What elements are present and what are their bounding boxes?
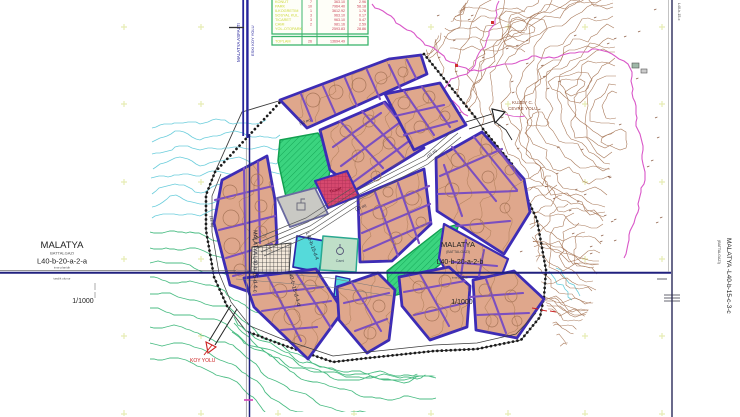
svg-text:MALATYA L40-b-15-d-4-c: MALATYA L40-b-15-d-4-c bbox=[252, 230, 258, 293]
svg-text:CAMI: CAMI bbox=[275, 22, 285, 26]
svg-text:(BATTALGAZI): (BATTALGAZI) bbox=[717, 240, 721, 264]
svg-text:imar planidir: imar planidir bbox=[54, 266, 70, 270]
svg-text:7964.40: 7964.40 bbox=[332, 5, 345, 9]
svg-text:0.17: 0.17 bbox=[359, 14, 366, 18]
svg-text:SOSYAL KUL.: SOSYAL KUL. bbox=[275, 14, 299, 18]
svg-text:5.47: 5.47 bbox=[359, 18, 366, 22]
svg-text:26: 26 bbox=[308, 40, 312, 44]
svg-text:(BATTALGAZI): (BATTALGAZI) bbox=[446, 250, 470, 254]
svg-text:28.86: 28.86 bbox=[357, 27, 366, 31]
svg-text:L40-b-15-c: L40-b-15-c bbox=[677, 3, 681, 21]
svg-text:MALATYA -L40-b-15-c-3-c: MALATYA -L40-b-15-c-3-c bbox=[725, 238, 732, 314]
svg-text:2.59: 2.59 bbox=[359, 22, 366, 26]
svg-text:TOPLAM: TOPLAM bbox=[275, 40, 291, 44]
svg-text:963.10: 963.10 bbox=[334, 18, 345, 22]
svg-text:1/1000: 1/1000 bbox=[451, 299, 473, 306]
svg-text:Cami: Cami bbox=[336, 259, 345, 263]
svg-text:58.18: 58.18 bbox=[357, 5, 366, 9]
svg-text:2.96: 2.96 bbox=[359, 0, 366, 4]
svg-text:981.16: 981.16 bbox=[334, 22, 345, 26]
svg-text:YOL-OTOPARK: YOL-OTOPARK bbox=[275, 27, 303, 31]
svg-text:KUZEY C.: KUZEY C. bbox=[512, 100, 533, 105]
svg-text:3612.92: 3612.92 bbox=[332, 9, 345, 13]
svg-text:KONUT: KONUT bbox=[275, 0, 289, 4]
svg-text:ESKI KOY YOLU: ESKI KOY YOLU bbox=[250, 25, 255, 56]
svg-text:1: 1 bbox=[310, 9, 312, 13]
svg-text:1.78: 1.78 bbox=[359, 9, 366, 13]
svg-text:2: 2 bbox=[310, 22, 312, 26]
svg-text:13694.49: 13694.49 bbox=[330, 40, 345, 44]
svg-text:1/1000: 1/1000 bbox=[72, 298, 94, 305]
svg-text:BATTALGAZI: BATTALGAZI bbox=[50, 251, 74, 256]
svg-text:MALATYA: MALATYA bbox=[41, 240, 85, 251]
svg-text:10: 10 bbox=[308, 5, 312, 9]
svg-text:tasdik olunur: tasdik olunur bbox=[53, 277, 70, 281]
svg-text:7: 7 bbox=[310, 0, 312, 4]
svg-text:MALATYA: MALATYA bbox=[441, 240, 475, 249]
svg-text:3: 3 bbox=[310, 14, 312, 18]
svg-text:MALATYA ASFALTI: MALATYA ASFALTI bbox=[236, 23, 241, 62]
svg-text:363.10: 363.10 bbox=[334, 0, 345, 4]
svg-text:KOY YOLU: KOY YOLU bbox=[190, 358, 216, 364]
svg-text:L40-b-20-a-2-a: L40-b-20-a-2-a bbox=[37, 257, 88, 266]
svg-text:3: 3 bbox=[310, 18, 312, 22]
svg-text:ILKOGRETIM: ILKOGRETIM bbox=[275, 9, 298, 13]
svg-text:CEVRE YOLU: CEVRE YOLU bbox=[508, 106, 538, 111]
svg-text:963.10: 963.10 bbox=[334, 14, 345, 18]
svg-text:PARK: PARK bbox=[275, 5, 286, 9]
svg-text:TICARET: TICARET bbox=[275, 18, 292, 22]
svg-text:imar planidir: imar planidir bbox=[452, 276, 468, 280]
svg-text:(12 m): (12 m) bbox=[209, 216, 215, 229]
svg-text:2593.83: 2593.83 bbox=[332, 27, 345, 31]
svg-text:L40-b-20-a-2-b: L40-b-20-a-2-b bbox=[437, 259, 484, 266]
